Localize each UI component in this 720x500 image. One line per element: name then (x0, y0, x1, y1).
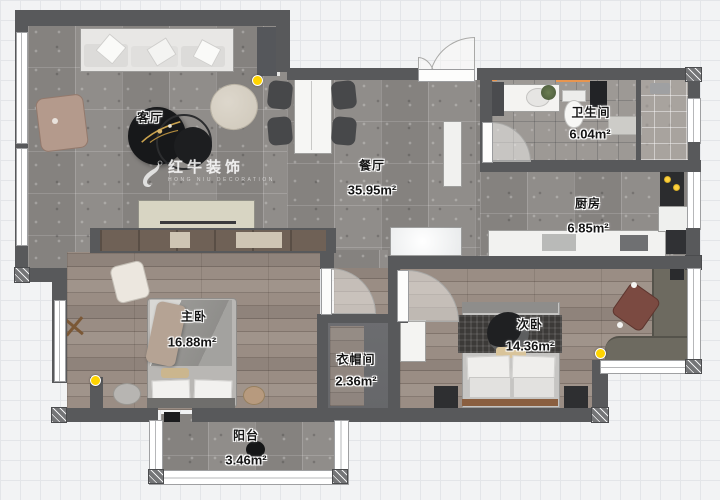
room-area-dining: 35.95m² (348, 183, 396, 198)
window-left-upper[interactable] (16, 32, 28, 144)
desk-horizontal[interactable] (605, 336, 687, 362)
room-area-bathroom: 6.04m² (569, 127, 610, 142)
bedside-stool[interactable] (243, 386, 265, 405)
room-area-balcony: 3.46m² (225, 453, 266, 468)
wall-right-1[interactable] (688, 81, 700, 99)
light-marker[interactable] (252, 75, 263, 86)
floorplan-canvas: 红牛装饰 HONG NIU DECORATION 客厅 餐厅 35.95m² 卫… (0, 0, 720, 500)
light-marker[interactable] (595, 348, 606, 359)
window-kitchen[interactable] (687, 170, 701, 230)
bull-logo-icon (138, 160, 164, 188)
wall-corner-step (15, 268, 29, 282)
window-balcony-right[interactable] (334, 420, 349, 474)
desk-monitor (670, 268, 684, 280)
room-label-cloak[interactable]: 衣帽间 (336, 351, 375, 368)
nightstand[interactable] (434, 386, 458, 408)
window-second-bottom[interactable] (600, 360, 690, 374)
armchair[interactable] (35, 93, 89, 152)
window-shower[interactable] (687, 98, 701, 144)
wall-living-right[interactable] (276, 26, 290, 72)
wardrobe[interactable] (400, 320, 426, 362)
floor-living-room-step[interactable] (28, 252, 68, 268)
kitchen-appliance (620, 235, 648, 251)
wall-bottom-mid[interactable] (192, 408, 607, 422)
bedroom-rug (113, 383, 141, 405)
room-area-master: 16.88m² (168, 335, 216, 350)
room-label-balcony[interactable]: 阳台 (233, 427, 259, 444)
window-left-lower[interactable] (16, 148, 28, 246)
fridge[interactable] (666, 230, 686, 254)
wall-corner-secondbr (686, 360, 701, 373)
window-master[interactable] (54, 300, 66, 382)
bathroom-door-leaf[interactable] (482, 122, 493, 163)
room-label-bathroom[interactable]: 卫生间 (571, 104, 610, 121)
master-headboard (147, 398, 235, 408)
second-pillow (469, 377, 511, 398)
plant[interactable] (541, 85, 556, 100)
burner-flame-icon (664, 176, 671, 183)
shower-partition-wall[interactable] (636, 80, 641, 172)
tv-wall-light-panel (170, 232, 190, 248)
stove[interactable] (660, 170, 684, 206)
second-bed-footboard (462, 399, 558, 406)
master-door-leaf[interactable] (321, 268, 332, 315)
light-marker[interactable] (90, 375, 101, 386)
shower-head[interactable] (650, 83, 670, 94)
burner-flame-icon (673, 184, 680, 191)
balcony-door-threshold (164, 412, 180, 422)
second-pillow (513, 377, 555, 398)
watermark-subtitle: HONG NIU DECORATION (168, 177, 275, 183)
wall-master-bottom[interactable] (52, 408, 158, 422)
wall-corner-secondstep (592, 408, 608, 422)
wall-master-right[interactable] (320, 252, 334, 269)
entry-door-leaf[interactable] (418, 69, 475, 82)
hall-cabinet[interactable] (443, 121, 462, 187)
wall-top[interactable] (15, 10, 290, 26)
floor-hallway[interactable] (332, 250, 388, 270)
tv-wall-panel (100, 230, 326, 251)
room-label-master[interactable]: 主卧 (181, 308, 207, 325)
window-balcony-bottom[interactable] (149, 470, 349, 485)
dining-chair[interactable] (267, 80, 294, 110)
wall-corner-balconyr (333, 470, 347, 483)
bathroom-cabinet[interactable] (492, 82, 504, 116)
master-bolster (161, 368, 189, 378)
room-label-kitchen[interactable]: 厨房 (575, 195, 601, 212)
dining-table-seam (311, 81, 312, 150)
wall-cloak-left[interactable] (317, 314, 328, 410)
wall-right-3[interactable] (686, 228, 700, 256)
dining-chair[interactable] (331, 116, 357, 146)
room-label-dining[interactable]: 餐厅 (359, 157, 385, 174)
sideboard[interactable] (390, 227, 462, 256)
wall-corner-masterbottom (52, 408, 66, 422)
dining-table[interactable] (294, 79, 332, 154)
second-door-leaf[interactable] (397, 270, 409, 322)
room-label-living[interactable]: 客厅 (137, 109, 163, 126)
tv-console[interactable] (138, 200, 255, 230)
wall-entry-right[interactable] (477, 68, 689, 80)
chair-knob (617, 322, 623, 328)
dining-chair[interactable] (331, 80, 358, 110)
room-area-second: 14.36m² (506, 339, 554, 354)
room-label-second[interactable]: 次卧 (517, 316, 543, 333)
room-area-cloak: 2.36m² (335, 374, 376, 389)
wall-kitchen-bottom[interactable] (388, 256, 701, 269)
dining-chair[interactable] (267, 116, 293, 146)
room-area-kitchen: 6.85m² (567, 221, 608, 236)
brand-watermark: 红牛装饰 HONG NIU DECORATION (138, 160, 275, 188)
wall-entry-left[interactable] (287, 68, 418, 80)
wall-corner-topright (686, 68, 701, 81)
window-balcony-left[interactable] (149, 420, 163, 474)
watermark-brand: 红牛装饰 (168, 160, 275, 176)
kitchen-sink (542, 234, 576, 251)
wall-corner-balconyl (149, 470, 163, 483)
tv-screen (160, 221, 236, 224)
armchair-dot (52, 118, 58, 124)
tv-wall-light-panel (236, 232, 282, 248)
window-second-right[interactable] (687, 268, 701, 362)
chair-knob (631, 282, 637, 288)
nightstand[interactable] (564, 386, 588, 408)
